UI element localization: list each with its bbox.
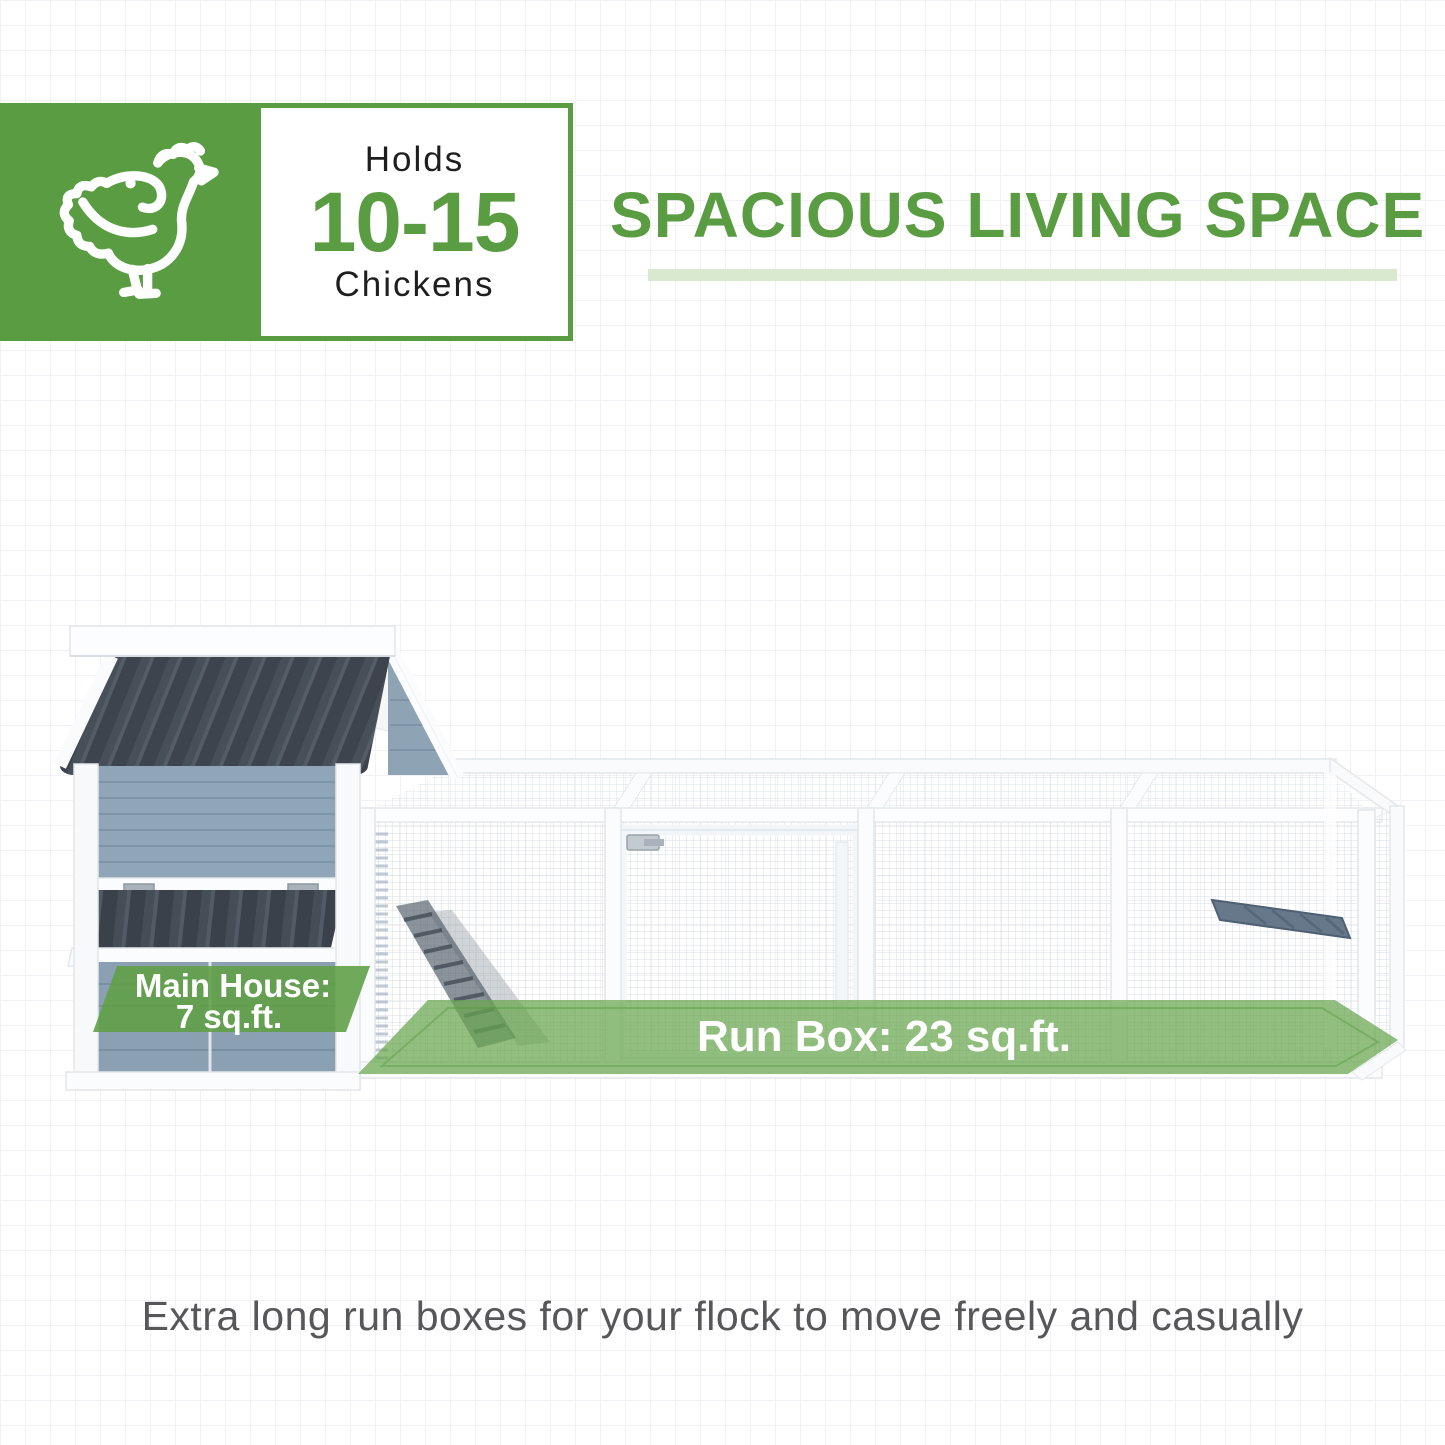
- capacity-prefix-label: Holds: [365, 142, 464, 177]
- page-title: SPACIOUS LIVING SPACE: [610, 183, 1445, 247]
- main-house-label-line2: 7 sq.ft.: [176, 998, 282, 1035]
- run-box-overlay: Run Box: 23 sq.ft.: [358, 1000, 1398, 1074]
- capacity-suffix-label: Chickens: [335, 267, 495, 302]
- chicken-icon: [30, 127, 226, 318]
- capacity-badge-icon-panel: [0, 103, 256, 341]
- title-underline: [648, 269, 1397, 281]
- capacity-count: 10-15: [310, 177, 520, 268]
- main-house-overlay: Main House: 7 sq.ft.: [93, 966, 370, 1035]
- door-latch: [627, 835, 664, 850]
- capacity-badge-count-panel: Holds 10-15 Chickens: [256, 103, 573, 341]
- caption-text: Extra long run boxes for your flock to m…: [0, 1293, 1445, 1340]
- chicken-coop-illustration: Run Box: 23 sq.ft. Main House: 7 sq.ft.: [0, 560, 1445, 1120]
- run-box-label: Run Box: 23 sq.ft.: [697, 1012, 1071, 1061]
